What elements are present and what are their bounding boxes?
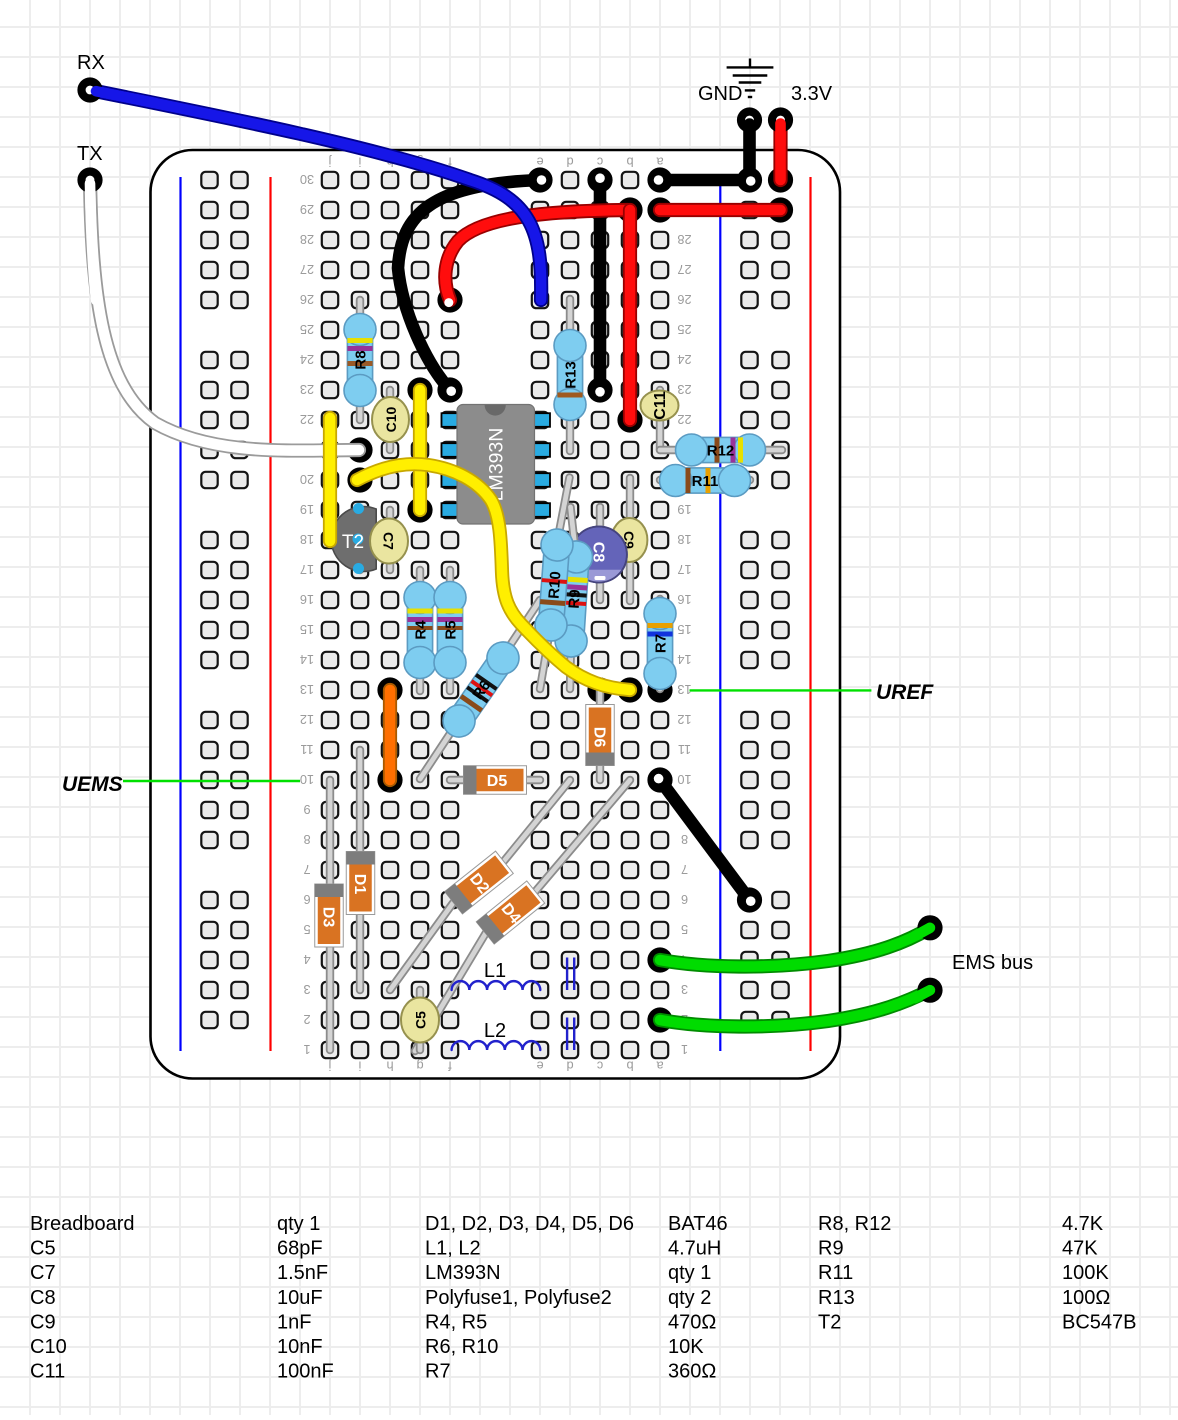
svg-text:19: 19 [300,502,314,517]
svg-text:10K: 10K [668,1336,704,1358]
svg-text:TX: TX [77,143,103,165]
svg-text:7: 7 [681,862,688,877]
svg-text:D1, D2, D3, D4, D5, D6: D1, D2, D3, D4, D5, D6 [425,1213,634,1235]
svg-text:R12: R12 [707,443,735,460]
svg-text:8: 8 [303,832,310,847]
svg-text:68pF: 68pF [277,1238,323,1260]
svg-text:R11: R11 [692,473,719,490]
svg-text:C5: C5 [30,1238,56,1260]
svg-text:T2: T2 [818,1311,841,1333]
svg-text:D1: D1 [351,874,368,895]
svg-text:LM393N: LM393N [425,1262,501,1284]
svg-text:25: 25 [677,322,691,337]
svg-text:100nF: 100nF [277,1361,334,1383]
svg-text:13: 13 [677,682,691,697]
svg-text:4: 4 [303,952,310,967]
svg-text:i: i [359,155,362,170]
svg-text:i: i [359,1059,362,1074]
svg-text:R4, R5: R4, R5 [425,1311,487,1333]
svg-text:L2: L2 [484,1020,506,1042]
svg-text:470Ω: 470Ω [668,1311,716,1333]
svg-text:Breadboard: Breadboard [30,1213,135,1235]
svg-text:23: 23 [300,382,314,397]
svg-text:10nF: 10nF [277,1336,323,1358]
svg-text:16: 16 [300,592,314,607]
svg-text:26: 26 [300,292,314,307]
svg-text:28: 28 [677,232,691,247]
svg-text:UREF: UREF [876,681,934,704]
svg-text:10: 10 [300,772,314,787]
svg-text:10: 10 [677,772,691,787]
svg-text:3: 3 [303,982,310,997]
svg-text:10uF: 10uF [277,1287,323,1309]
svg-text:a: a [656,155,664,170]
svg-text:b: b [626,155,633,170]
svg-text:11: 11 [678,742,691,757]
svg-text:c: c [596,155,603,170]
svg-text:e: e [536,155,543,170]
svg-text:29: 29 [300,202,314,217]
svg-text:Polyfuse1, Polyfuse2: Polyfuse1, Polyfuse2 [425,1287,612,1309]
svg-text:6: 6 [303,892,310,907]
svg-text:47K: 47K [1062,1238,1098,1260]
svg-text:d: d [566,155,573,170]
svg-text:23: 23 [677,382,691,397]
svg-text:7: 7 [303,862,310,877]
svg-text:g: g [416,1059,423,1074]
svg-text:1.5nF: 1.5nF [277,1262,328,1284]
svg-text:5: 5 [303,922,310,937]
svg-text:24: 24 [677,352,691,367]
svg-text:j: j [329,155,333,170]
svg-text:100K: 100K [1062,1262,1109,1284]
svg-text:19: 19 [677,502,691,517]
svg-text:C11: C11 [652,391,669,420]
svg-text:R8, R12: R8, R12 [818,1213,891,1235]
svg-text:12: 12 [677,712,691,727]
svg-text:D6: D6 [591,727,608,748]
svg-text:R13: R13 [818,1287,855,1309]
svg-text:18: 18 [300,532,314,547]
svg-text:8: 8 [681,832,688,847]
svg-text:5: 5 [681,922,688,937]
svg-text:b: b [626,1059,633,1074]
svg-text:R9: R9 [566,589,584,609]
svg-text:27: 27 [300,262,314,277]
svg-text:R7: R7 [425,1361,451,1383]
svg-text:h: h [386,1059,393,1074]
svg-text:a: a [656,1059,664,1074]
svg-text:30: 30 [300,172,314,187]
svg-text:18: 18 [677,532,691,547]
svg-text:12: 12 [300,712,314,727]
svg-text:f: f [448,1059,452,1074]
svg-text:RX: RX [77,52,105,74]
svg-text:C5: C5 [413,1011,429,1029]
svg-text:R11: R11 [818,1262,853,1284]
svg-text:L1: L1 [484,960,506,982]
svg-text:28: 28 [300,232,314,247]
svg-text:qty 1: qty 1 [668,1262,711,1284]
svg-text:j: j [329,1059,333,1074]
svg-text:1: 1 [303,1042,310,1057]
svg-text:GND: GND [698,83,742,105]
svg-text:C9: C9 [30,1311,56,1333]
svg-text:EMS bus: EMS bus [952,952,1033,974]
svg-text:27: 27 [677,262,691,277]
svg-text:17: 17 [300,562,314,577]
svg-text:17: 17 [677,562,691,577]
svg-text:22: 22 [677,412,691,427]
svg-text:C7: C7 [381,532,397,550]
svg-text:360Ω: 360Ω [668,1361,716,1383]
svg-text:24: 24 [300,352,314,367]
svg-text:T2: T2 [342,532,364,553]
svg-text:15: 15 [677,622,691,637]
svg-text:c: c [596,1059,603,1074]
svg-text:4.7K: 4.7K [1062,1213,1104,1235]
svg-text:14: 14 [300,652,314,667]
svg-text:25: 25 [300,322,314,337]
svg-text:qty 2: qty 2 [668,1287,711,1309]
svg-text:2: 2 [303,1012,310,1027]
svg-text:C8: C8 [30,1287,56,1309]
svg-text:C10: C10 [30,1336,67,1358]
svg-text:R8: R8 [353,350,370,369]
svg-text:11: 11 [300,742,313,757]
svg-text:1nF: 1nF [277,1311,311,1333]
svg-text:R10: R10 [545,571,564,600]
svg-text:C10: C10 [383,406,399,432]
svg-text:D3: D3 [320,907,337,928]
svg-text:C7: C7 [30,1262,56,1284]
svg-text:C11: C11 [30,1361,65,1383]
svg-text:4.7uH: 4.7uH [668,1238,721,1260]
svg-text:d: d [566,1059,573,1074]
svg-text:3: 3 [681,982,688,997]
svg-text:R4: R4 [413,620,430,640]
svg-text:22: 22 [300,412,314,427]
svg-text:R13: R13 [563,361,580,389]
svg-text:20: 20 [300,472,314,487]
svg-text:100Ω: 100Ω [1062,1287,1110,1309]
svg-text:UEMS: UEMS [62,773,123,796]
svg-text:BC547B: BC547B [1062,1311,1137,1333]
svg-text:e: e [536,1059,543,1074]
svg-text:qty 1: qty 1 [277,1213,320,1235]
svg-text:L1, L2: L1, L2 [425,1238,481,1260]
svg-text:1: 1 [681,1042,688,1057]
svg-text:26: 26 [677,292,691,307]
svg-text:R9: R9 [818,1238,844,1260]
svg-text:D5: D5 [487,773,508,790]
svg-text:3.3V: 3.3V [791,83,833,105]
svg-text:13: 13 [300,682,314,697]
svg-text:6: 6 [681,892,688,907]
svg-text:16: 16 [677,592,691,607]
svg-text:9: 9 [303,802,310,817]
svg-text:14: 14 [677,652,691,667]
svg-text:R6, R10: R6, R10 [425,1336,498,1358]
svg-text:15: 15 [300,622,314,637]
svg-text:R7: R7 [653,634,670,653]
svg-text:BAT46: BAT46 [668,1213,728,1235]
svg-text:R5: R5 [443,620,460,639]
